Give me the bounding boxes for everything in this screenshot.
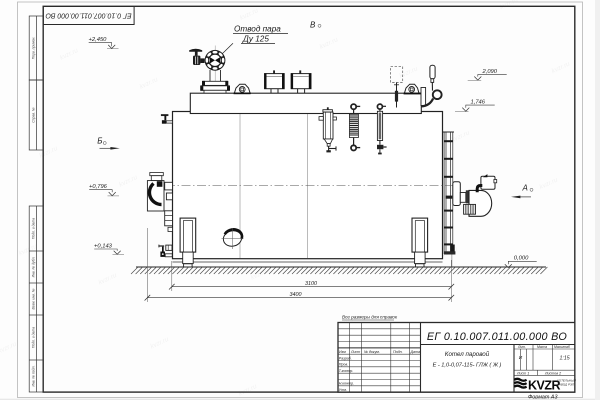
svg-text:Инв. № подл.: Инв. № подл. — [32, 365, 36, 386]
svg-text:3100: 3100 — [305, 281, 317, 287]
svg-text:Котел паровой: Котел паровой — [445, 351, 490, 358]
svg-text:ЕГ 0.10.007.011.00.000 ВО: ЕГ 0.10.007.011.00.000 ВО — [45, 12, 132, 19]
svg-text:А: А — [522, 184, 528, 193]
svg-text:Подп.: Подп. — [393, 350, 403, 354]
svg-text:Взам. инв. №: Взам. инв. № — [32, 288, 36, 309]
svg-text:Н.контр.: Н.контр. — [339, 382, 354, 386]
svg-text:Лист 1: Лист 1 — [516, 372, 529, 376]
svg-text:И: И — [519, 355, 523, 361]
svg-text:Т.контр.: Т.контр. — [339, 369, 354, 373]
svg-text:Ду 125: Ду 125 — [242, 35, 269, 44]
svg-text:Перв. примен.: Перв. примен. — [32, 37, 36, 60]
svg-text:2,090: 2,090 — [482, 69, 498, 75]
svg-text:+2,450: +2,450 — [89, 37, 108, 43]
svg-text:Справ. №: Справ. № — [32, 107, 36, 123]
svg-text:1,746: 1,746 — [471, 100, 486, 106]
svg-text:ЕГ 0.10.007.011.00.000 ВО: ЕГ 0.10.007.011.00.000 ВО — [427, 331, 568, 343]
svg-text:Б: Б — [97, 137, 102, 146]
svg-text:Изм: Изм — [339, 350, 346, 354]
svg-text:Лист: Лист — [350, 350, 360, 354]
svg-text:Инв. № дубл.: Инв. № дубл. — [32, 257, 36, 278]
svg-text:Все размеры для справок: Все размеры для справок — [342, 315, 398, 320]
svg-text:Подп. и дата: Подп. и дата — [32, 327, 36, 348]
svg-text:KVZR: KVZR — [528, 379, 561, 393]
svg-text:Е - 1,0-0,07-115- ГЛЖ ( Ж ): Е - 1,0-0,07-115- ГЛЖ ( Ж ) — [433, 363, 502, 369]
svg-text:+0,796: +0,796 — [89, 184, 108, 190]
svg-text:Отвод пара: Отвод пара — [234, 25, 281, 34]
svg-text:3400: 3400 — [290, 292, 302, 298]
svg-text:Дата: Дата — [410, 350, 420, 354]
svg-text:Утв.: Утв. — [339, 388, 347, 392]
svg-text:Разраб.: Разраб. — [339, 356, 352, 360]
svg-text:ЗАВОД РЭП: ЗАВОД РЭП — [557, 383, 575, 387]
svg-text:0,000: 0,000 — [514, 255, 529, 261]
svg-text:Подп. и дата: Подп. и дата — [32, 218, 36, 239]
svg-text:Пров.: Пров. — [339, 363, 348, 367]
svg-text:№ докум.: № докум. — [364, 350, 380, 354]
svg-text:В: В — [310, 21, 316, 30]
svg-text:Масштаб: Масштаб — [554, 345, 570, 349]
svg-text:Листов 2: Листов 2 — [544, 372, 561, 376]
svg-text:1:15: 1:15 — [560, 356, 570, 362]
svg-text:+0,143: +0,143 — [94, 243, 113, 249]
svg-text:Масса: Масса — [537, 345, 547, 349]
svg-text:Лит.: Лит. — [517, 345, 526, 349]
